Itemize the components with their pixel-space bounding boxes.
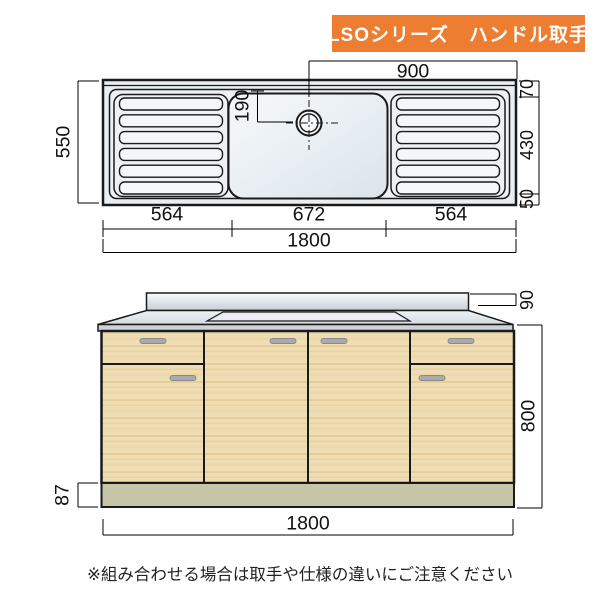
drainboard-slat — [397, 115, 500, 127]
dim-label-564-left: 564 — [151, 205, 184, 225]
dim-90-line — [470, 294, 516, 306]
door-handle-right — [419, 376, 445, 381]
dim-label-1800-top: 1800 — [287, 231, 330, 251]
drainboard-slat — [120, 165, 223, 177]
caution-note: ※組み合わせる場合は取手や仕様の違いにご注意ください — [87, 561, 513, 585]
drawer-handle-right — [448, 339, 474, 344]
drainboard-slat — [120, 132, 223, 144]
technical-drawing — [0, 0, 600, 600]
drainboard-slat — [120, 115, 223, 127]
drainboard-slat — [397, 148, 500, 160]
dim-87-line — [78, 483, 98, 507]
sink-cutout-outline — [207, 312, 410, 321]
dim-label-672: 672 — [293, 205, 326, 225]
drainboard-slat — [397, 132, 500, 144]
kickplate — [102, 483, 515, 507]
product-diagram-page: LSOシリーズ ハンドル取手 — [0, 0, 600, 600]
dim-label-430: 430 — [518, 130, 536, 160]
door-handle-mid-right — [321, 339, 347, 344]
backsplash — [147, 293, 469, 311]
dim-label-564-right: 564 — [435, 205, 468, 225]
dim-label-190: 190 — [233, 90, 253, 123]
dim-label-1800-bottom: 1800 — [286, 514, 329, 534]
drainboard-slat — [397, 182, 500, 194]
dim-label-550: 550 — [54, 126, 74, 159]
dim-label-87: 87 — [53, 484, 73, 506]
drainboard-slat — [120, 148, 223, 160]
cabinet-front-view — [98, 293, 514, 507]
dim-label-900: 900 — [397, 62, 430, 82]
dim-550-line — [78, 81, 99, 203]
door-handle-mid-left — [270, 339, 296, 344]
dim-label-70: 70 — [518, 79, 536, 99]
drawer-handle-left — [140, 339, 166, 344]
dim-label-50: 50 — [518, 189, 536, 209]
door-handle-left — [170, 376, 196, 381]
drainboard-slat — [120, 98, 223, 110]
drainboard-slat — [397, 165, 500, 177]
dim-label-800: 800 — [519, 400, 539, 433]
dim-label-90: 90 — [518, 290, 536, 310]
sink-top-view — [103, 80, 516, 205]
drainboard-slat — [397, 98, 500, 110]
drainboard-slat — [120, 182, 223, 194]
